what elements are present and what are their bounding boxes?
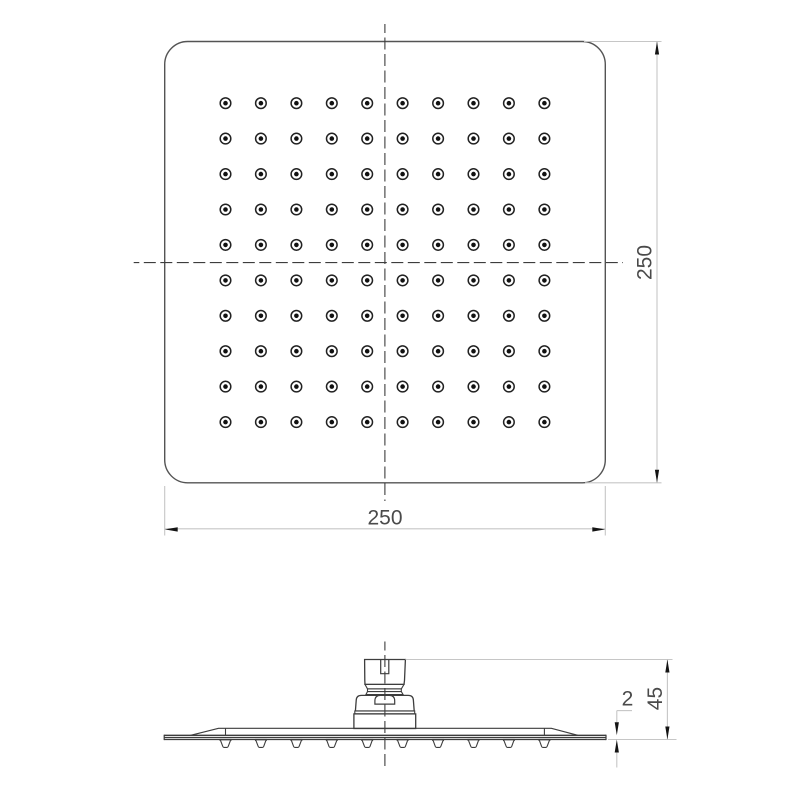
svg-text:2: 2 [622,687,634,710]
svg-text:45: 45 [644,687,667,710]
svg-text:250: 250 [634,245,657,280]
svg-text:250: 250 [367,507,402,530]
